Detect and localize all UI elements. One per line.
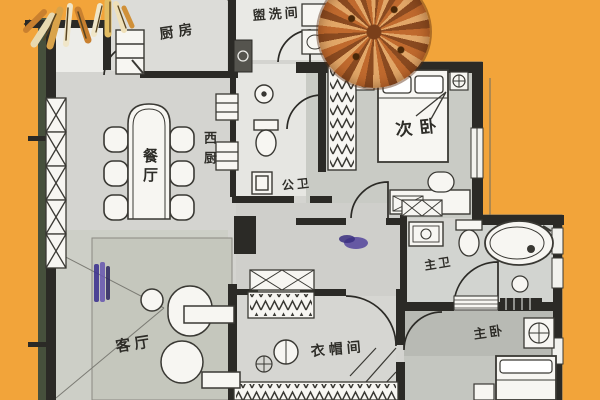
floorplan-drawing: [0, 0, 600, 400]
room-label-laundry: 盥洗间: [252, 2, 301, 24]
balcony-cabinet: [46, 98, 66, 268]
room-label-west-kitchen: 西厨: [199, 131, 218, 171]
floorplan-canvas: 厨房 盥洗间 次卧 餐厅 西厨 公卫 主卫 客厅 衣帽间 主卧: [0, 0, 600, 400]
room-label-second-bedroom: 次卧: [394, 111, 444, 141]
kitchen-counter: [116, 30, 144, 74]
room-label-public-bath: 公卫: [281, 174, 313, 194]
room-label-dining: 餐厅: [140, 148, 161, 186]
